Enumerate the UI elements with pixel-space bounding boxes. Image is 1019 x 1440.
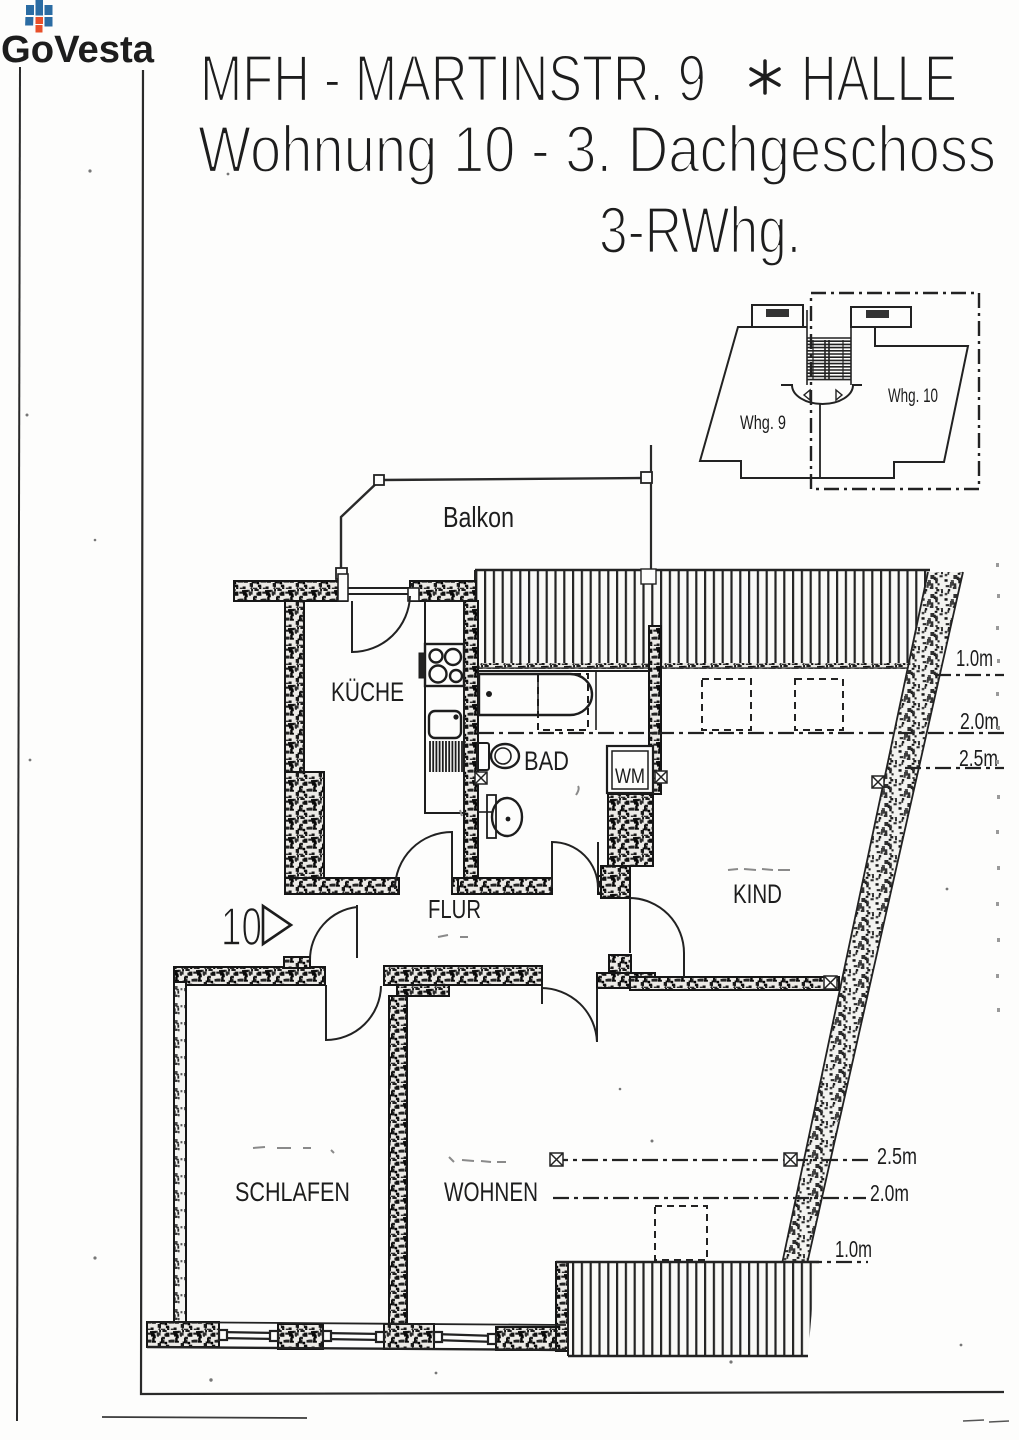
svg-text:KÜCHE: KÜCHE — [331, 677, 404, 707]
svg-text:Wohnung 10 - 3. Dachgeschoss: Wohnung 10 - 3. Dachgeschoss — [198, 112, 996, 186]
svg-text:1.0m: 1.0m — [835, 1236, 872, 1262]
svg-text:2.0m: 2.0m — [960, 708, 999, 734]
svg-text:WOHNEN: WOHNEN — [444, 1177, 538, 1207]
svg-text:2.0m: 2.0m — [870, 1180, 909, 1206]
svg-text:2.5m: 2.5m — [877, 1143, 917, 1169]
svg-text:10: 10 — [221, 897, 262, 957]
svg-text:3-RWhg.: 3-RWhg. — [599, 193, 801, 267]
svg-text:KIND: KIND — [733, 879, 782, 909]
svg-text:SCHLAFEN: SCHLAFEN — [235, 1177, 350, 1207]
svg-text:Whg. 10: Whg. 10 — [888, 386, 938, 407]
svg-text:1.0m: 1.0m — [956, 645, 993, 671]
svg-text:Whg. 9: Whg. 9 — [740, 413, 786, 434]
svg-text:FLUR: FLUR — [428, 894, 481, 924]
svg-text:MFH - MARTINSTR. 9: MFH - MARTINSTR. 9 — [200, 41, 706, 115]
svg-text:WM: WM — [615, 765, 645, 788]
svg-text:Balkon: Balkon — [443, 502, 514, 534]
svg-text:BAD: BAD — [524, 746, 569, 776]
svg-text:2.5m: 2.5m — [959, 745, 998, 771]
svg-text:HALLE: HALLE — [801, 41, 957, 115]
svg-text:GoVesta: GoVesta — [1, 29, 155, 71]
